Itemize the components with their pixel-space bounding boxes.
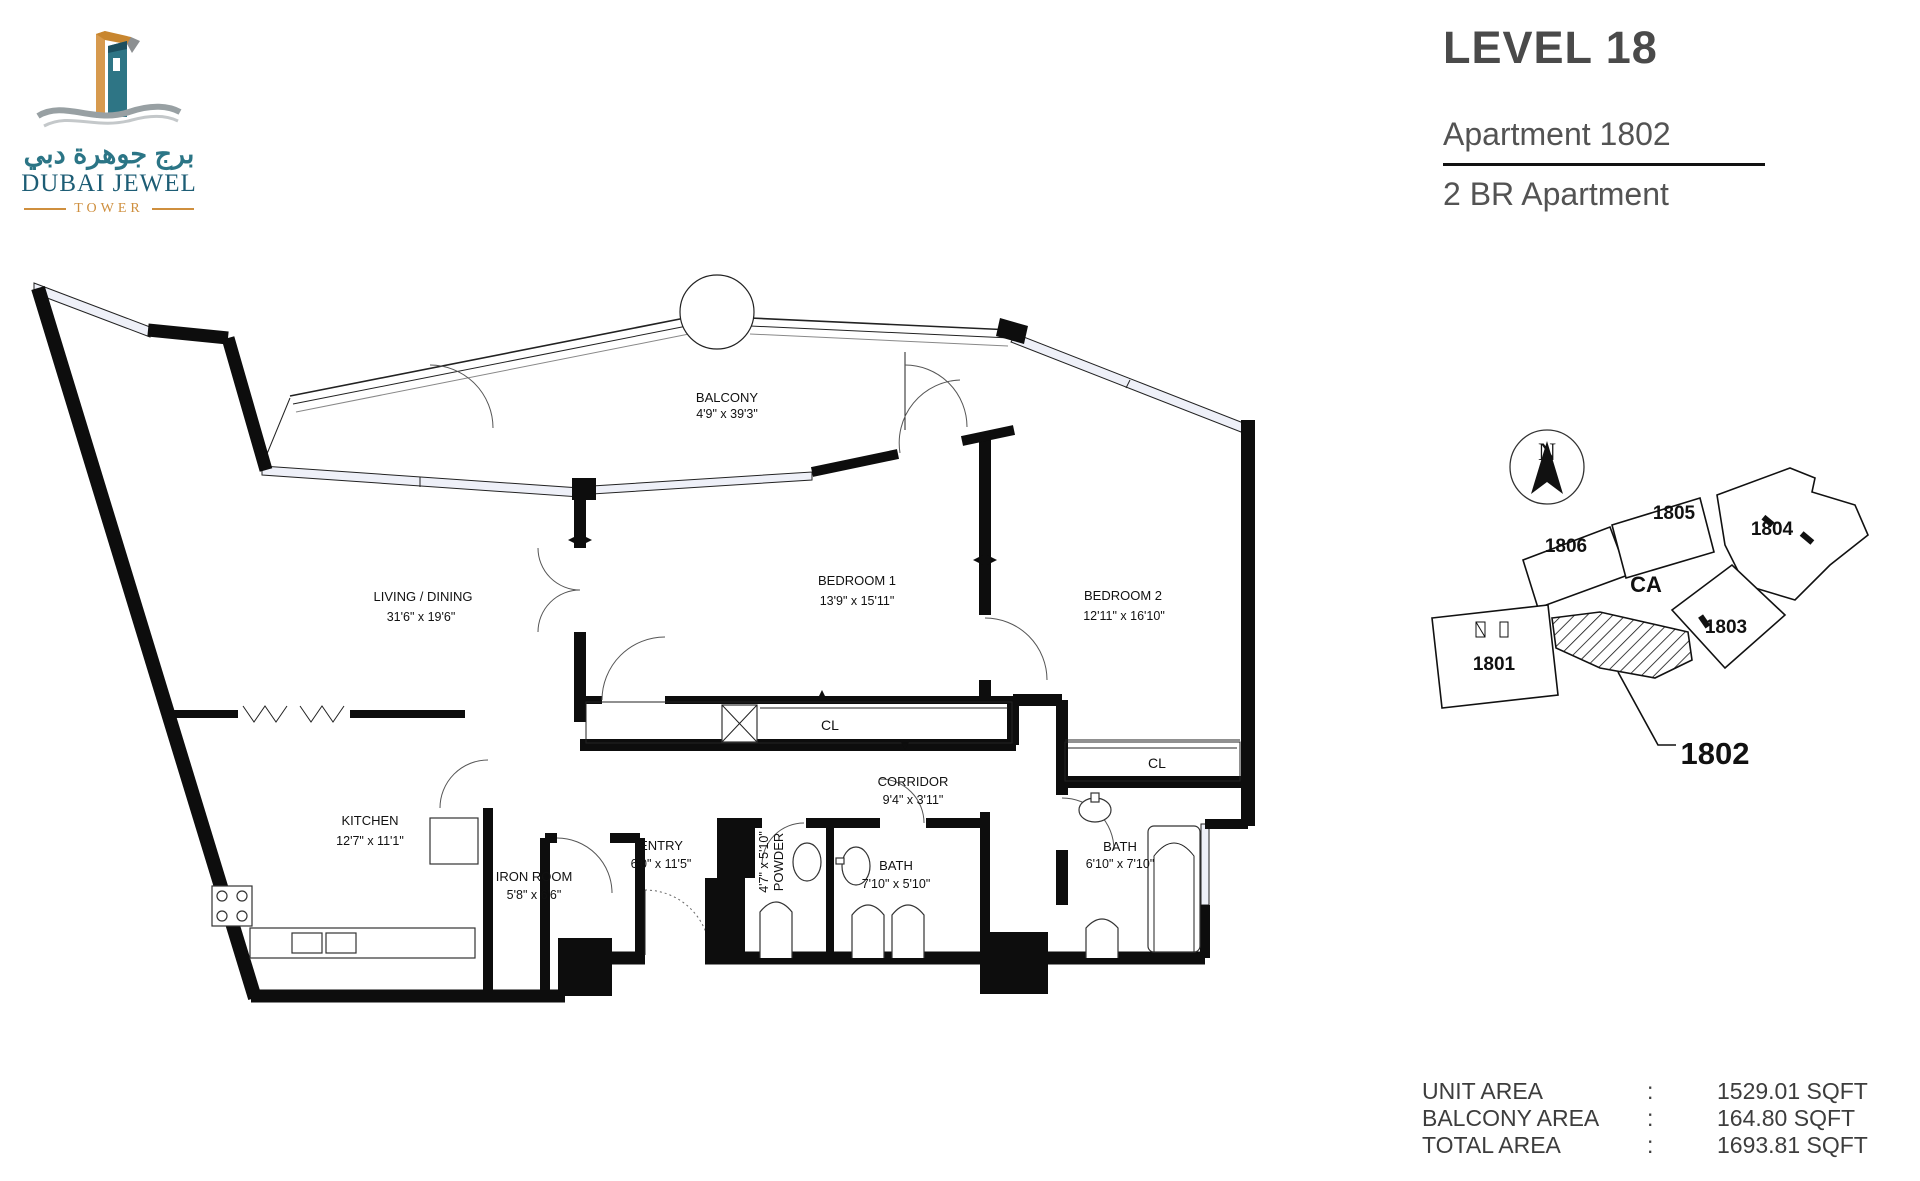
area-separator: : [1647, 1132, 1717, 1159]
room-dims-bath1: 7'10" x 5'10" [862, 877, 931, 891]
header-underline [1443, 163, 1765, 166]
tower-logo-icon [34, 20, 184, 138]
room-dims-balcony: 4'9" x 39'3" [696, 407, 758, 421]
room-label-bath1: BATH [879, 858, 913, 873]
bath2-toilet [1086, 919, 1118, 958]
area-label: BALCONY AREA [1422, 1105, 1647, 1132]
room-dims-powder: 4'7" x 5'10" [757, 831, 771, 893]
level-title: LEVEL 18 [1443, 22, 1765, 74]
area-value: 1693.81 SQFT [1717, 1132, 1868, 1159]
floor-plan-drawing: BALCONY 4'9" x 39'3" LIVING / DINING 31'… [0, 225, 1350, 1015]
logo-rule-right [152, 208, 194, 210]
closet-label-1: CL [821, 717, 839, 733]
unit-callout: 1802 [1618, 672, 1749, 771]
north-indicator: N [1510, 430, 1584, 504]
area-label: TOTAL AREA [1422, 1132, 1647, 1159]
stove [212, 886, 252, 926]
logo-subtitle-text: TOWER [74, 201, 144, 217]
room-label-bedroom1: BEDROOM 1 [818, 573, 896, 588]
apartment-type: 2 BR Apartment [1443, 176, 1765, 213]
room-dims-corridor: 9'4" x 3'11" [883, 793, 944, 807]
room-dims-iron-room: 5'8" x 6'6" [507, 888, 562, 902]
logo-arabic-text: برج جوهرة دبي [14, 140, 204, 168]
dimension-arrows [568, 535, 997, 750]
area-value: 1529.01 SQFT [1717, 1078, 1868, 1105]
room-label-iron-room: IRON ROOM [496, 869, 573, 884]
unit-label-1804: 1804 [1751, 519, 1794, 540]
common-area-label: CA [1630, 572, 1662, 597]
room-dims-entry: 6'0" x 11'5" [631, 857, 692, 871]
closet-label-2: CL [1148, 755, 1166, 771]
callout-label-1802: 1802 [1681, 736, 1750, 771]
north-arrow-icon [1531, 441, 1563, 494]
room-dims-living: 31'6" x 19'6" [387, 610, 456, 624]
apartment-number: Apartment 1802 [1443, 116, 1765, 153]
area-row-unit: UNIT AREA : 1529.01 SQFT [1422, 1078, 1868, 1105]
unit-label-1803: 1803 [1705, 617, 1747, 638]
room-label-balcony: BALCONY [696, 390, 758, 405]
wall-block-powder [705, 818, 755, 958]
room-label-entry: ENTRY [639, 838, 683, 853]
bath1-bidet [892, 905, 924, 958]
logo-rule-left [24, 208, 66, 210]
area-row-total: TOTAL AREA : 1693.81 SQFT [1422, 1132, 1868, 1159]
powder-toilet [760, 902, 792, 958]
window-bands [34, 283, 1246, 905]
area-separator: : [1647, 1105, 1717, 1132]
powder-sink [793, 843, 821, 881]
room-dims-bedroom1: 13'9" x 15'11" [820, 594, 895, 608]
shaft-block-entry [558, 938, 612, 996]
area-row-balcony: BALCONY AREA : 164.80 SQFT [1422, 1105, 1868, 1132]
room-label-bedroom2: BEDROOM 2 [1084, 588, 1162, 603]
area-separator: : [1647, 1078, 1717, 1105]
room-dims-bath2: 6'10" x 7'10" [1086, 857, 1155, 871]
plan-header: LEVEL 18 Apartment 1802 2 BR Apartment [1443, 22, 1765, 213]
key-plan: N 1806 1805 1804 CA 1803 1801 1802 [1430, 420, 1920, 810]
unit-label-1805: 1805 [1653, 503, 1696, 524]
brand-logo: برج جوهرة دبي DUBAI JEWEL TOWER [14, 20, 204, 217]
area-table: UNIT AREA : 1529.01 SQFT BALCONY AREA : … [1422, 1078, 1868, 1159]
room-label-kitchen: KITCHEN [341, 813, 398, 828]
logo-subtitle-row: TOWER [14, 201, 204, 217]
tower-icon-shapes [38, 31, 180, 126]
bath2-tub [1148, 826, 1200, 952]
room-label-corridor: CORRIDOR [878, 774, 949, 789]
unit-label-1806: 1806 [1545, 536, 1587, 557]
room-dims-kitchen: 12'7" x 11'1" [336, 834, 404, 848]
logo-name-text: DUBAI JEWEL [14, 170, 204, 198]
shaft-block-bath [980, 932, 1048, 994]
room-label-powder: POWDER [771, 833, 786, 892]
unit-outline-1802-highlighted [1552, 612, 1692, 678]
kitchen-sink [292, 933, 322, 953]
balcony-apex-circle [680, 275, 754, 349]
area-value: 164.80 SQFT [1717, 1105, 1855, 1132]
room-dims-bedroom2: 12'11" x 16'10" [1083, 609, 1165, 623]
area-label: UNIT AREA [1422, 1078, 1647, 1105]
floor-plan-page: { "colors": {"teal":"#2b7586","dark_teal… [0, 0, 1920, 1181]
unit-label-1801: 1801 [1473, 654, 1516, 675]
bath1-toilet [852, 905, 884, 958]
room-label-living: LIVING / DINING [374, 589, 473, 604]
kitchen-cabinet [430, 818, 478, 864]
room-label-bath2: BATH [1103, 839, 1137, 854]
kitchen-counter [250, 928, 475, 958]
